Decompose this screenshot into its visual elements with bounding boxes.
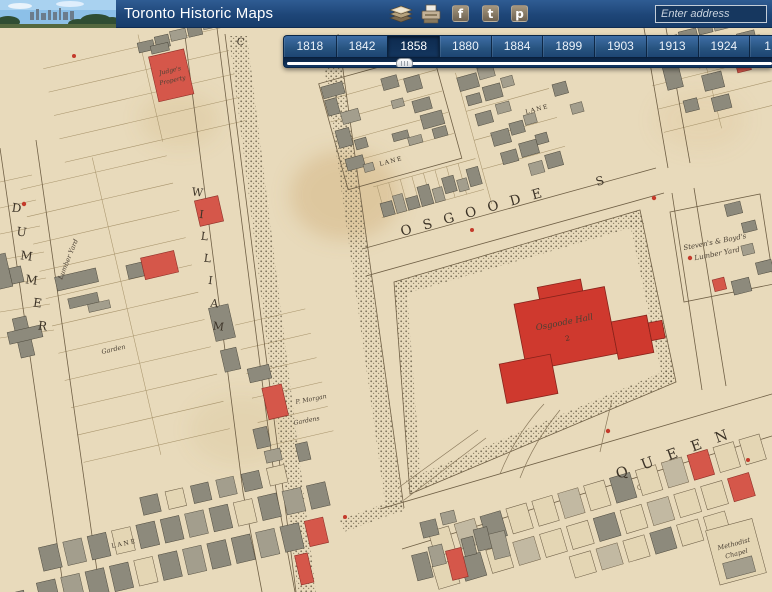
- timeline-year-1818[interactable]: 1818: [284, 36, 336, 57]
- svg-text:W: W: [191, 185, 204, 199]
- svg-text:M: M: [212, 319, 225, 333]
- pinterest-icon: p: [515, 7, 524, 21]
- timeline-year-1880[interactable]: 1880: [439, 36, 491, 57]
- facebook-icon: f: [458, 7, 463, 21]
- svg-text:U: U: [16, 224, 28, 239]
- timeline-year-1858-selected[interactable]: 1858: [387, 36, 439, 57]
- timeline-slider[interactable]: [284, 57, 772, 68]
- header-bar: Toronto Historic Maps f t p: [0, 0, 772, 28]
- toronto-skyline-photo: [0, 0, 116, 28]
- print-button[interactable]: [420, 4, 442, 24]
- timeline-year-1842[interactable]: 1842: [336, 36, 388, 57]
- twitter-icon: t: [488, 7, 494, 21]
- svg-text:M: M: [19, 248, 33, 264]
- map-list-button[interactable]: [388, 4, 414, 24]
- svg-text:M: M: [24, 272, 38, 288]
- timeline-years-row: 1818 1842 1858 1880 1884 1899 1903 1913 …: [284, 36, 772, 57]
- printer-icon: [420, 4, 442, 24]
- timeline-bar: 1818 1842 1858 1880 1884 1899 1903 1913 …: [283, 35, 772, 68]
- twitter-button[interactable]: t: [482, 5, 499, 22]
- address-search-input[interactable]: [655, 5, 767, 23]
- app-title: Toronto Historic Maps: [124, 0, 273, 28]
- timeline-year-1903[interactable]: 1903: [594, 36, 646, 57]
- svg-text:D: D: [11, 200, 22, 215]
- slider-track[interactable]: [287, 62, 772, 65]
- timeline-year-1924[interactable]: 1924: [698, 36, 750, 57]
- pinterest-button[interactable]: p: [511, 5, 528, 22]
- timeline-year-1899[interactable]: 1899: [542, 36, 594, 57]
- timeline-year-next-partial[interactable]: 1: [749, 36, 772, 57]
- timeline-year-1884[interactable]: 1884: [491, 36, 543, 57]
- historic-map-canvas[interactable]: Osgoode Hall 2 Judge's Property: [0, 0, 772, 592]
- app-window: Osgoode Hall 2 Judge's Property: [0, 0, 772, 592]
- book-stack-icon: [388, 4, 414, 24]
- facebook-button[interactable]: f: [452, 5, 469, 22]
- timeline-year-1913[interactable]: 1913: [646, 36, 698, 57]
- slider-handle[interactable]: [396, 58, 413, 68]
